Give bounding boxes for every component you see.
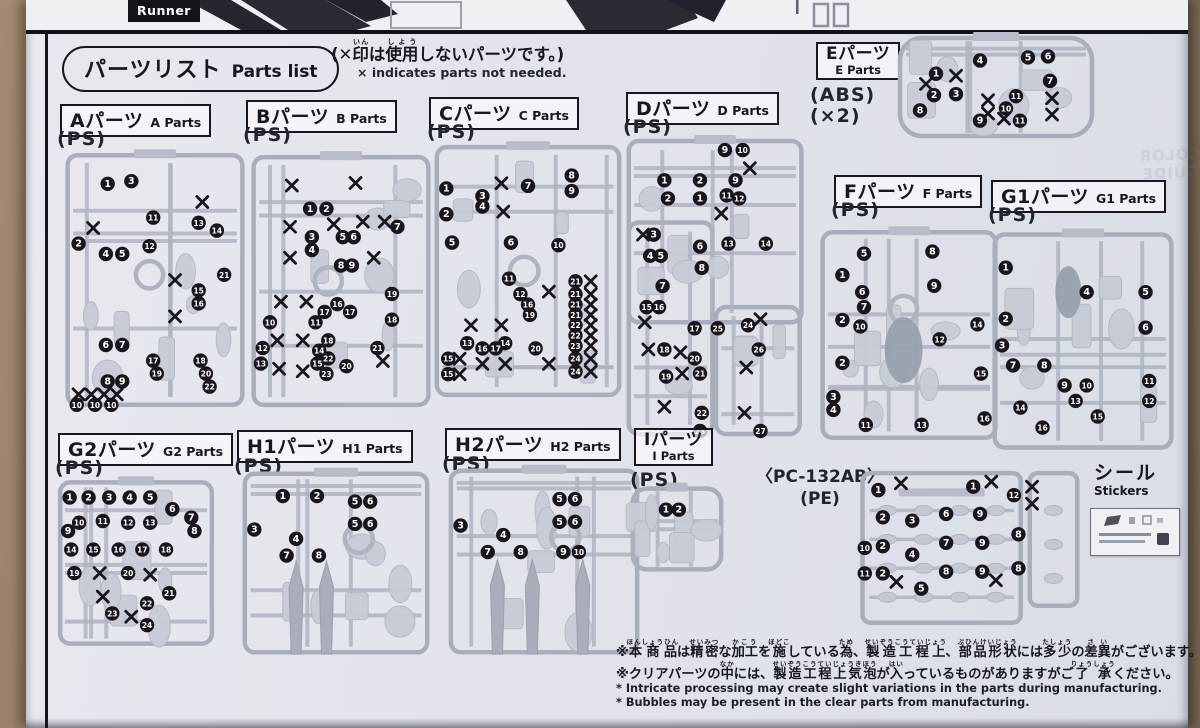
section-pc-runner: 〈PC-132AB〉(PE)1112236981027941128985 xyxy=(0,0,1200,728)
section-a-parts: AパーツA Parts(PS)1311213144512211516671719… xyxy=(0,0,1200,728)
svg-text:1: 1 xyxy=(66,492,73,503)
section-h2-parts: H2パーツH2 Parts(PS)34565678910 xyxy=(0,0,1200,728)
h2-parts-material-line1: (PS) xyxy=(442,454,491,475)
svg-text:18: 18 xyxy=(323,336,333,345)
h2-parts-label-en: H2 Parts xyxy=(550,439,610,454)
svg-text:14: 14 xyxy=(212,227,222,236)
svg-text:9: 9 xyxy=(560,547,567,558)
svg-text:9: 9 xyxy=(732,175,739,186)
svg-text:11: 11 xyxy=(504,275,514,284)
svg-text:13: 13 xyxy=(916,421,926,430)
svg-text:10: 10 xyxy=(860,544,870,553)
svg-text:1: 1 xyxy=(697,193,704,204)
b-parts-runner-diagram: 1273564891916171710111812141813152021222… xyxy=(250,152,432,410)
svg-text:3: 3 xyxy=(309,232,316,243)
disclaimer-jp-line1: ※本商品ほんしょうひんは精密せいみつな加工かこうを施ほどこしている為ため、製造工… xyxy=(616,638,1194,660)
svg-text:2: 2 xyxy=(1002,314,1009,325)
svg-text:17: 17 xyxy=(137,546,147,555)
svg-text:11: 11 xyxy=(861,421,871,430)
svg-text:21: 21 xyxy=(164,589,174,598)
i-parts-material-line1: (PS) xyxy=(630,470,679,491)
svg-text:27: 27 xyxy=(755,427,765,436)
svg-text:4: 4 xyxy=(293,534,300,545)
h1-parts-material: (PS) xyxy=(234,456,283,477)
section-i-parts: IパーツI Parts(PS)12 xyxy=(0,0,1200,728)
g2-parts-label: G2パーツG2 Parts xyxy=(58,433,233,466)
svg-text:3: 3 xyxy=(830,392,837,403)
svg-text:10: 10 xyxy=(553,241,563,250)
svg-text:7: 7 xyxy=(861,302,868,313)
svg-text:5: 5 xyxy=(658,251,665,262)
unused-parts-note-jp: (✕印いんは使用しようしないパーツです。) xyxy=(331,38,566,65)
svg-text:6: 6 xyxy=(103,340,110,351)
svg-text:3: 3 xyxy=(953,89,960,100)
disclaimer-en-line2: * Bubbles may be present in the clear pa… xyxy=(616,696,1194,711)
svg-text:2: 2 xyxy=(323,204,330,215)
svg-text:5: 5 xyxy=(918,584,925,595)
svg-text:2: 2 xyxy=(676,505,683,516)
svg-text:6: 6 xyxy=(859,287,866,298)
svg-text:1: 1 xyxy=(839,270,846,281)
svg-text:2: 2 xyxy=(880,568,887,579)
svg-text:23: 23 xyxy=(107,609,117,618)
svg-text:19: 19 xyxy=(525,311,535,320)
svg-text:19: 19 xyxy=(661,373,671,382)
svg-text:4: 4 xyxy=(909,550,916,561)
svg-text:18: 18 xyxy=(195,357,205,366)
section-e-parts: EパーツE Parts(ABS)(×2)145623781110911 xyxy=(0,0,1200,728)
g2-parts-material: (PS) xyxy=(55,458,104,479)
svg-text:8: 8 xyxy=(943,567,950,578)
svg-text:3: 3 xyxy=(479,191,486,202)
svg-text:6: 6 xyxy=(1045,51,1052,62)
svg-text:26: 26 xyxy=(754,345,764,354)
svg-text:20: 20 xyxy=(530,344,540,353)
g1-parts-label: G1パーツG1 Parts xyxy=(991,180,1166,213)
svg-text:2: 2 xyxy=(697,175,704,186)
svg-text:24: 24 xyxy=(743,321,753,330)
sticker-section-label: シール Stickers xyxy=(1094,464,1157,498)
svg-text:9: 9 xyxy=(977,116,984,127)
svg-text:7: 7 xyxy=(119,340,126,351)
svg-text:23: 23 xyxy=(570,342,580,351)
svg-text:10: 10 xyxy=(1081,381,1091,390)
svg-text:6: 6 xyxy=(572,517,579,528)
svg-text:2: 2 xyxy=(665,193,672,204)
c-parts-label-jp: Cパーツ xyxy=(439,99,512,126)
section-g1-parts: G1パーツG1 Parts(PS)14526378910111213141516 xyxy=(0,0,1200,728)
svg-text:1: 1 xyxy=(104,179,111,190)
d-parts-material-line1: (PS) xyxy=(623,117,672,138)
svg-text:11: 11 xyxy=(721,191,731,200)
a-parts-material: (PS) xyxy=(57,129,106,150)
svg-text:19: 19 xyxy=(69,569,79,578)
svg-text:8: 8 xyxy=(929,247,936,258)
svg-text:8: 8 xyxy=(104,376,111,387)
svg-text:8: 8 xyxy=(316,551,323,562)
sticker-label-jp: シール xyxy=(1094,464,1157,484)
h2-parts-material: (PS) xyxy=(442,454,491,475)
svg-text:2: 2 xyxy=(839,358,846,369)
svg-text:9: 9 xyxy=(977,509,984,520)
i-parts-label-en: I Parts xyxy=(644,450,703,463)
svg-text:7: 7 xyxy=(659,281,666,292)
sticker-sheet-image xyxy=(1090,508,1180,556)
svg-text:14: 14 xyxy=(1015,404,1025,413)
f-parts-runner-diagram: 581697210141221534111316 xyxy=(819,228,999,442)
section-c-parts: CパーツC Parts(PS)1789342561011122121162119… xyxy=(0,0,1200,728)
svg-text:14: 14 xyxy=(66,546,76,555)
svg-text:2: 2 xyxy=(931,90,938,101)
f-parts-material: (PS) xyxy=(831,200,880,221)
svg-text:8: 8 xyxy=(517,547,524,558)
svg-text:15: 15 xyxy=(193,286,203,295)
svg-text:9: 9 xyxy=(979,567,986,578)
svg-text:3: 3 xyxy=(128,176,135,187)
svg-text:5: 5 xyxy=(119,249,126,260)
svg-text:6: 6 xyxy=(350,232,357,243)
svg-text:4: 4 xyxy=(103,249,110,260)
svg-text:10: 10 xyxy=(1001,104,1011,113)
svg-text:19: 19 xyxy=(387,290,397,299)
pc-runner-label: 〈PC-132AB〉(PE) xyxy=(756,466,884,510)
svg-text:5: 5 xyxy=(352,519,359,530)
svg-text:11: 11 xyxy=(1144,377,1154,386)
svg-text:13: 13 xyxy=(193,219,203,228)
pc-runner-label-line2: (PE) xyxy=(756,488,884,510)
g2-parts-material-line1: (PS) xyxy=(55,458,104,479)
svg-text:7: 7 xyxy=(394,222,401,233)
svg-text:1: 1 xyxy=(1002,263,1009,274)
svg-text:24: 24 xyxy=(142,621,152,630)
svg-text:2: 2 xyxy=(443,209,450,220)
svg-text:18: 18 xyxy=(659,345,669,354)
e-parts-material-line1: (ABS) xyxy=(810,85,875,106)
g1-parts-runner-diagram: 14526378910111213141516 xyxy=(991,230,1175,452)
e-parts-runner-diagram: 145623781110911 xyxy=(896,36,1096,138)
svg-text:7: 7 xyxy=(943,538,950,549)
svg-text:21: 21 xyxy=(570,311,580,320)
svg-text:22: 22 xyxy=(570,321,580,330)
i-parts-label: IパーツI Parts xyxy=(634,428,713,466)
parts-list-title: パーツリスト Parts list xyxy=(62,46,339,92)
svg-text:9: 9 xyxy=(979,538,986,549)
svg-text:9: 9 xyxy=(722,145,729,156)
svg-text:12: 12 xyxy=(144,242,154,251)
section-d-parts: DパーツD Parts(PS)9101291112213456131487151… xyxy=(0,0,1200,728)
svg-text:1: 1 xyxy=(933,69,940,80)
a-parts-material-line1: (PS) xyxy=(57,129,106,150)
svg-text:21: 21 xyxy=(570,290,580,299)
svg-text:20: 20 xyxy=(341,362,351,371)
svg-text:4: 4 xyxy=(1083,287,1090,298)
c-parts-material-line1: (PS) xyxy=(427,122,476,143)
section-b-parts: BパーツB Parts(PS)1273564891916171710111812… xyxy=(0,0,1200,728)
svg-text:20: 20 xyxy=(123,569,133,578)
svg-text:3: 3 xyxy=(650,230,657,241)
svg-text:14: 14 xyxy=(314,347,324,356)
svg-text:3: 3 xyxy=(909,516,916,527)
svg-text:13: 13 xyxy=(723,240,733,249)
svg-text:4: 4 xyxy=(479,202,486,213)
section-h1-parts: H1パーツH1 Parts(PS)1256356478 xyxy=(0,0,1200,728)
svg-text:21: 21 xyxy=(570,301,580,310)
svg-text:2: 2 xyxy=(880,541,887,552)
svg-text:12: 12 xyxy=(123,519,133,528)
svg-text:8: 8 xyxy=(698,263,705,274)
svg-text:23: 23 xyxy=(321,370,331,379)
svg-text:2: 2 xyxy=(85,492,92,503)
svg-text:5: 5 xyxy=(1142,287,1149,298)
e-parts-label-en: E Parts xyxy=(826,64,890,77)
svg-text:3: 3 xyxy=(106,492,113,503)
svg-text:12: 12 xyxy=(734,194,744,203)
svg-text:4: 4 xyxy=(647,251,654,262)
f-parts-label-jp: Fパーツ xyxy=(844,177,916,204)
e-parts-material: (ABS)(×2) xyxy=(810,85,875,126)
g1-parts-label-jp: G1パーツ xyxy=(1001,182,1089,209)
svg-text:15: 15 xyxy=(976,370,986,379)
svg-text:17: 17 xyxy=(689,324,699,333)
svg-text:12: 12 xyxy=(515,290,525,299)
b-parts-material-line1: (PS) xyxy=(243,125,292,146)
svg-text:21: 21 xyxy=(695,370,705,379)
svg-text:3: 3 xyxy=(999,340,1006,351)
svg-text:5: 5 xyxy=(1025,52,1032,63)
svg-text:13: 13 xyxy=(145,519,155,528)
disclaimer-jp-line2: ※クリアパーツの中なかには、製造工程上気泡せいぞうこうていじょうきほうが入はいっ… xyxy=(616,660,1194,682)
svg-text:6: 6 xyxy=(367,497,374,508)
svg-text:10: 10 xyxy=(855,322,865,331)
g1-parts-material-line1: (PS) xyxy=(988,205,1037,226)
svg-text:20: 20 xyxy=(201,370,211,379)
svg-text:6: 6 xyxy=(943,509,950,520)
svg-text:15: 15 xyxy=(641,303,651,312)
svg-text:5: 5 xyxy=(449,238,456,249)
svg-text:4: 4 xyxy=(126,492,133,503)
svg-text:14: 14 xyxy=(761,240,771,249)
svg-text:11: 11 xyxy=(148,214,158,223)
svg-text:6: 6 xyxy=(169,504,176,515)
svg-text:11: 11 xyxy=(1015,117,1025,126)
svg-text:8: 8 xyxy=(917,105,924,116)
svg-text:22: 22 xyxy=(142,599,152,608)
e-parts-label-jp: Eパーツ xyxy=(826,46,890,64)
svg-text:10: 10 xyxy=(74,519,84,528)
h2-parts-label: H2パーツH2 Parts xyxy=(445,428,621,461)
manufacturing-disclaimer: ※本商品ほんしょうひんは精密せいみつな加工かこうを施ほどこしている為ため、製造工… xyxy=(616,638,1194,711)
svg-text:10: 10 xyxy=(90,401,100,410)
svg-text:6: 6 xyxy=(508,238,515,249)
svg-text:21: 21 xyxy=(372,344,382,353)
svg-text:7: 7 xyxy=(1047,76,1054,87)
section-f-parts: FパーツF Parts(PS)581697210141221534111316 xyxy=(0,0,1200,728)
f-parts-material-line1: (PS) xyxy=(831,200,880,221)
svg-text:6: 6 xyxy=(572,494,579,505)
svg-text:9: 9 xyxy=(931,281,938,292)
d-parts-label-en: D Parts xyxy=(717,103,769,118)
svg-text:2: 2 xyxy=(314,491,321,502)
b-parts-label-en: B Parts xyxy=(336,111,387,126)
svg-text:11: 11 xyxy=(98,517,108,526)
svg-text:10: 10 xyxy=(72,401,82,410)
svg-text:16: 16 xyxy=(193,299,203,308)
svg-text:11: 11 xyxy=(310,318,320,327)
g2-parts-runner-diagram: 123459101112136781415161718192021222324 xyxy=(57,479,215,647)
svg-text:9: 9 xyxy=(119,376,126,387)
sticker-label-en: Stickers xyxy=(1094,485,1157,498)
svg-text:1: 1 xyxy=(307,204,314,215)
svg-text:15: 15 xyxy=(443,370,453,379)
svg-text:12: 12 xyxy=(1009,491,1019,500)
svg-text:18: 18 xyxy=(387,316,397,325)
svg-text:17: 17 xyxy=(490,344,500,353)
svg-text:8: 8 xyxy=(1015,563,1022,574)
f-parts-label: FパーツF Parts xyxy=(834,175,982,208)
svg-text:19: 19 xyxy=(152,370,162,379)
h2-parts-runner-diagram: 34565678910 xyxy=(447,467,641,656)
svg-text:7: 7 xyxy=(525,181,532,192)
svg-text:10: 10 xyxy=(265,318,275,327)
svg-text:16: 16 xyxy=(113,546,123,555)
svg-text:5: 5 xyxy=(556,494,563,505)
svg-text:10: 10 xyxy=(737,146,747,155)
svg-text:8: 8 xyxy=(1041,360,1048,371)
parts-list-title-en: Parts list xyxy=(232,62,318,82)
svg-text:17: 17 xyxy=(345,308,355,317)
svg-text:3: 3 xyxy=(457,521,464,532)
svg-text:22: 22 xyxy=(323,354,333,363)
i-parts-material: (PS) xyxy=(630,470,679,491)
svg-text:17: 17 xyxy=(319,308,329,317)
unused-parts-note-en: × indicates parts not needed. xyxy=(357,65,566,80)
svg-text:8: 8 xyxy=(191,526,198,537)
svg-text:6: 6 xyxy=(1142,323,1149,334)
svg-text:1: 1 xyxy=(661,175,668,186)
svg-text:20: 20 xyxy=(689,354,699,363)
svg-text:16: 16 xyxy=(654,303,664,312)
a-parts-runner-diagram: 131121314451221151667171918202289101010 xyxy=(64,150,246,410)
svg-text:4: 4 xyxy=(309,245,316,256)
svg-text:16: 16 xyxy=(1037,424,1047,433)
svg-text:24: 24 xyxy=(570,355,580,364)
f-parts-label-en: F Parts xyxy=(923,186,973,201)
svg-text:1: 1 xyxy=(970,482,977,493)
a-parts-label: AパーツA Parts xyxy=(60,104,211,137)
pc-runner-label-line1: 〈PC-132AB〉 xyxy=(756,466,884,488)
svg-text:18: 18 xyxy=(161,546,171,555)
svg-text:5: 5 xyxy=(556,517,563,528)
svg-text:4: 4 xyxy=(500,530,507,541)
h2-parts-label-jp: H2パーツ xyxy=(455,430,543,457)
svg-text:13: 13 xyxy=(1070,397,1080,406)
svg-text:5: 5 xyxy=(861,249,868,260)
svg-text:12: 12 xyxy=(934,335,944,344)
g1-parts-label-en: G1 Parts xyxy=(1096,191,1156,206)
svg-text:4: 4 xyxy=(830,405,837,416)
svg-text:17: 17 xyxy=(148,357,158,366)
h1-parts-label: H1パーツH1 Parts xyxy=(237,430,413,463)
svg-text:22: 22 xyxy=(697,409,707,418)
svg-text:11: 11 xyxy=(1011,92,1021,101)
svg-text:16: 16 xyxy=(477,344,487,353)
b-parts-label: BパーツB Parts xyxy=(246,100,397,133)
parts-list-content: パーツリスト Parts list (✕印いんは使用しようしないパーツです。) … xyxy=(0,0,1200,728)
svg-text:22: 22 xyxy=(570,332,580,341)
svg-text:23: 23 xyxy=(695,427,705,436)
svg-text:13: 13 xyxy=(256,360,266,369)
svg-text:2: 2 xyxy=(75,239,82,250)
svg-text:15: 15 xyxy=(1093,412,1103,421)
a-parts-label-en: A Parts xyxy=(150,115,201,130)
parts-list-title-jp: パーツリスト xyxy=(84,52,222,84)
disclaimer-en-line1: * Intricate processing may create slight… xyxy=(616,682,1194,697)
svg-text:14: 14 xyxy=(972,320,982,329)
g2-parts-label-en: G2 Parts xyxy=(163,444,223,459)
g1-parts-material: (PS) xyxy=(988,205,1037,226)
svg-text:13: 13 xyxy=(462,339,472,348)
svg-text:16: 16 xyxy=(979,414,989,423)
svg-text:2: 2 xyxy=(839,315,846,326)
h1-parts-runner-diagram: 1256356478 xyxy=(241,470,431,656)
svg-text:2: 2 xyxy=(880,512,887,523)
svg-text:1: 1 xyxy=(279,491,286,502)
svg-text:4: 4 xyxy=(977,55,984,66)
i-parts-runner-diagram: 12 xyxy=(631,487,723,571)
c-parts-runner-diagram: 1789342561011122121162119212222131416172… xyxy=(433,142,623,400)
svg-text:15: 15 xyxy=(88,546,98,555)
svg-text:15: 15 xyxy=(443,355,453,364)
svg-text:6: 6 xyxy=(697,242,704,253)
svg-text:5: 5 xyxy=(147,492,154,503)
svg-text:1: 1 xyxy=(443,183,450,194)
svg-text:8: 8 xyxy=(568,171,575,182)
svg-text:16: 16 xyxy=(523,301,533,310)
b-parts-label-jp: Bパーツ xyxy=(256,102,329,129)
svg-text:8: 8 xyxy=(338,261,345,272)
svg-text:22: 22 xyxy=(204,383,214,392)
svg-text:25: 25 xyxy=(713,324,723,333)
h1-parts-material-line1: (PS) xyxy=(234,456,283,477)
svg-text:5: 5 xyxy=(352,497,359,508)
d-parts-label: DパーツD Parts xyxy=(626,92,779,125)
svg-text:12: 12 xyxy=(258,344,268,353)
svg-text:9: 9 xyxy=(65,526,72,537)
svg-text:9: 9 xyxy=(568,186,575,197)
svg-text:8: 8 xyxy=(1015,529,1022,540)
svg-text:15: 15 xyxy=(312,360,322,369)
svg-text:14: 14 xyxy=(500,339,510,348)
section-g2-parts: G2パーツG2 Parts(PS)12345910111213678141516… xyxy=(0,0,1200,728)
h1-parts-label-en: H1 Parts xyxy=(342,441,402,456)
c-parts-label-en: C Parts xyxy=(519,108,569,123)
svg-text:1: 1 xyxy=(875,485,882,496)
svg-text:9: 9 xyxy=(1061,380,1068,391)
c-parts-material: (PS) xyxy=(427,122,476,143)
svg-text:6: 6 xyxy=(367,519,374,530)
h1-parts-label-jp: H1パーツ xyxy=(247,432,335,459)
i-parts-label-jp: Iパーツ xyxy=(644,432,703,450)
svg-text:5: 5 xyxy=(340,232,347,243)
svg-text:7: 7 xyxy=(484,547,491,558)
pc-runner-runner-diagram: 1112236981027941128985 xyxy=(858,468,1084,638)
c-parts-label: CパーツC Parts xyxy=(429,97,579,130)
e-parts-material-line2: (×2) xyxy=(810,106,875,127)
d-parts-material: (PS) xyxy=(623,117,672,138)
svg-text:3: 3 xyxy=(251,525,258,536)
svg-text:7: 7 xyxy=(283,551,290,562)
b-parts-material: (PS) xyxy=(243,125,292,146)
